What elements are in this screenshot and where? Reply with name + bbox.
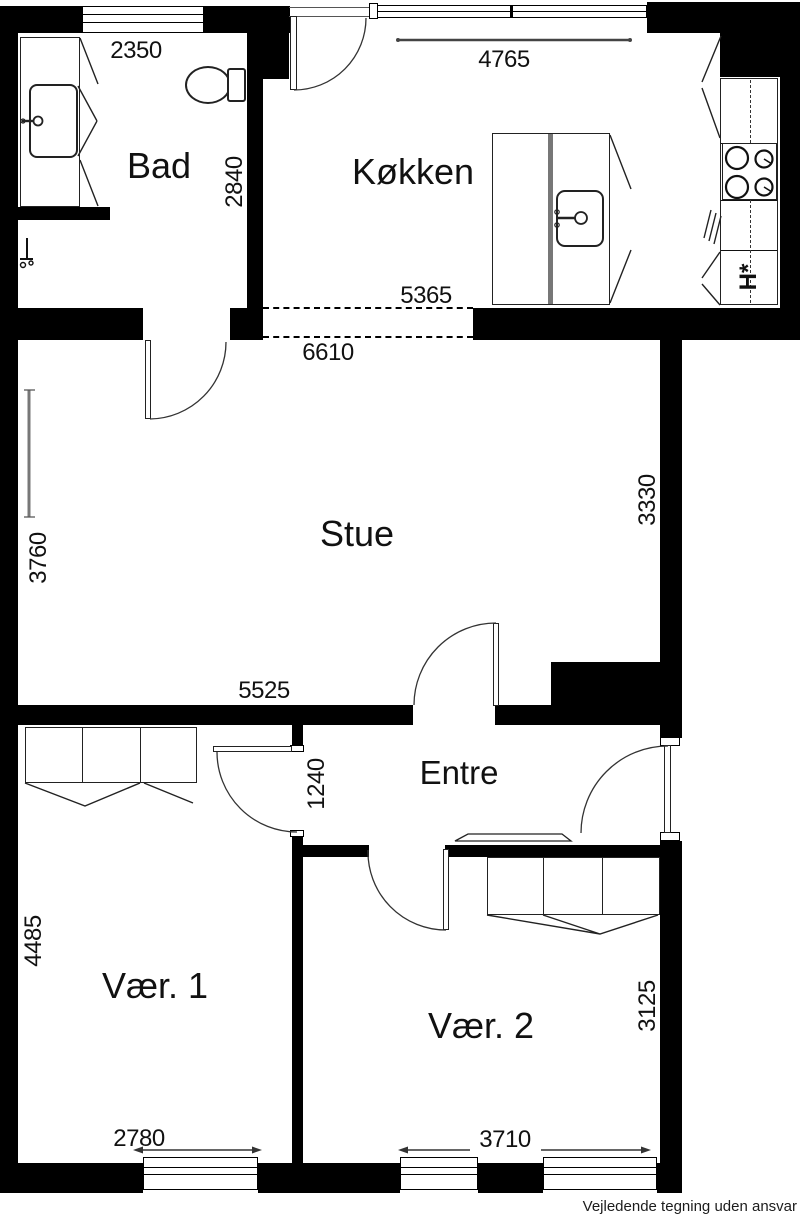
wall-bottom-4 bbox=[657, 1163, 682, 1193]
wall-bad-stue-left bbox=[0, 308, 143, 340]
dim-label-1240: 1240 bbox=[303, 758, 331, 809]
wall-kokken-bottom bbox=[473, 308, 800, 340]
dim-label-2840: 2840 bbox=[221, 156, 249, 207]
vaer1-door-swing-icon bbox=[217, 752, 297, 832]
vaer2-door-leaf bbox=[443, 849, 449, 930]
dim-label-2350: 2350 bbox=[110, 37, 161, 65]
toilet-icon bbox=[185, 66, 231, 104]
window-frame-line bbox=[544, 1167, 656, 1168]
island-break-lines bbox=[610, 135, 631, 303]
vaer2-door-swing-icon bbox=[368, 850, 446, 930]
room-label-vaer1: Vær. 1 bbox=[102, 965, 208, 1007]
wall-bottom-2 bbox=[258, 1163, 400, 1193]
stue-door-swing-icon bbox=[414, 623, 496, 705]
counter-break-lines bbox=[702, 36, 721, 305]
room-label-vaer2: Vær. 2 bbox=[428, 1005, 534, 1047]
disclaimer-text: Vejledende tegning uden ansvar bbox=[583, 1198, 797, 1215]
room-label-stue: Stue bbox=[320, 513, 394, 555]
window-mullion bbox=[510, 6, 513, 17]
wall-top-right-b bbox=[720, 33, 800, 77]
dim-label-6610: 6610 bbox=[302, 339, 353, 367]
wall-stue-right bbox=[660, 340, 682, 738]
bad-counter-break-lines bbox=[78, 38, 98, 206]
dim-label-3760: 3760 bbox=[25, 532, 53, 583]
dim-label-4485: 4485 bbox=[20, 915, 48, 966]
wardrobe-divider bbox=[82, 728, 83, 782]
dim-label-3710: 3710 bbox=[479, 1126, 530, 1154]
wall-left-exterior bbox=[0, 6, 18, 1193]
wall-top-left bbox=[0, 6, 82, 33]
wardrobe-divider bbox=[602, 858, 603, 914]
wall-shower-partition bbox=[18, 207, 110, 220]
bathroom-sink-icon bbox=[29, 84, 78, 158]
stove-icon bbox=[722, 143, 777, 200]
kokken-window-icon bbox=[377, 5, 647, 18]
wall-bottom-3 bbox=[478, 1163, 543, 1193]
entrance-door-swing-icon bbox=[581, 746, 668, 833]
window-frame-line bbox=[144, 1174, 257, 1175]
dim-label-2780: 2780 bbox=[113, 1125, 164, 1153]
wall-top-right-a bbox=[647, 2, 800, 33]
dim-label-5525: 5525 bbox=[238, 677, 289, 705]
entrance-door-frame bbox=[660, 832, 680, 841]
vaer1-wardrobe-icon bbox=[25, 727, 197, 783]
wardrobe-divider bbox=[140, 728, 141, 782]
window-frame-line bbox=[83, 14, 203, 15]
wall-stue-bottom-left bbox=[0, 705, 413, 725]
vaer2-window-left-icon bbox=[400, 1157, 478, 1190]
vaer2-wardrobe-rail-marks bbox=[487, 915, 658, 934]
kitchen-exterior-door-swing-icon bbox=[294, 18, 366, 90]
room-label-kokken: Køkken bbox=[352, 151, 474, 193]
counter-section-line bbox=[721, 250, 777, 251]
island-divider bbox=[548, 134, 553, 304]
counter-section-line bbox=[721, 200, 777, 201]
wall-bad-stue-right bbox=[230, 308, 263, 340]
bad-window-icon bbox=[82, 6, 204, 33]
floor-plan: Bad Køkken Stue Entre Vær. 1 Vær. 2 2350… bbox=[0, 0, 800, 1220]
entrance-door-leaf bbox=[664, 745, 671, 833]
kitchen-exterior-door-leaf bbox=[290, 16, 297, 90]
vaer1-door-frame bbox=[290, 830, 304, 837]
door-opening-line bbox=[289, 7, 369, 8]
wall-vaer1-vaer2 bbox=[292, 837, 303, 1163]
wall-divider-stub bbox=[292, 725, 303, 747]
dimension-line-4765 bbox=[396, 38, 632, 42]
door-opening-line bbox=[289, 16, 369, 17]
bad-door-swing-icon bbox=[150, 342, 226, 419]
wall-entre-bottom-left bbox=[292, 845, 369, 857]
appliance-label-h: H* bbox=[735, 264, 763, 291]
room-label-bad: Bad bbox=[127, 145, 191, 187]
shower-valve-icon bbox=[20, 238, 33, 268]
stue-door-leaf bbox=[493, 623, 499, 706]
room-label-entre: Entre bbox=[420, 754, 499, 792]
doormat-icon bbox=[455, 834, 571, 841]
bad-door-leaf bbox=[145, 340, 151, 419]
dim-label-5365: 5365 bbox=[400, 282, 451, 310]
wall-right-lower bbox=[660, 841, 682, 1193]
window-frame-line bbox=[401, 1174, 477, 1175]
window-frame-line bbox=[401, 1167, 477, 1168]
wall-bottom-1 bbox=[0, 1163, 143, 1193]
vaer2-window-right-icon bbox=[543, 1157, 657, 1190]
window-frame-line bbox=[544, 1174, 656, 1175]
wall-step-chunk bbox=[551, 662, 660, 705]
wall-right-kitchen bbox=[780, 77, 800, 312]
dim-label-3330: 3330 bbox=[634, 474, 662, 525]
wardrobe-divider bbox=[543, 858, 544, 914]
wall-entre-bottom-right bbox=[445, 845, 660, 857]
window-frame-line bbox=[144, 1167, 257, 1168]
vaer1-wardrobe-rail-marks bbox=[25, 783, 193, 806]
vaer1-door-frame bbox=[290, 745, 304, 752]
dim-label-3125: 3125 bbox=[634, 980, 662, 1031]
window-frame-line bbox=[83, 22, 203, 23]
wall-bad-kokken bbox=[247, 6, 263, 310]
vent-hatch-lines bbox=[704, 210, 721, 244]
dimension-line-3760 bbox=[24, 390, 35, 517]
vaer1-window-icon bbox=[143, 1157, 258, 1190]
dim-label-4765: 4765 bbox=[478, 46, 529, 74]
toilet-cistern bbox=[227, 68, 246, 102]
kitchen-sink-icon bbox=[556, 190, 604, 247]
vaer1-door-leaf bbox=[213, 746, 292, 752]
vaer2-wardrobe-icon bbox=[487, 857, 660, 915]
open-plan-dashed-line-bottom bbox=[263, 336, 473, 338]
wall-stue-bottom-right bbox=[495, 705, 660, 725]
